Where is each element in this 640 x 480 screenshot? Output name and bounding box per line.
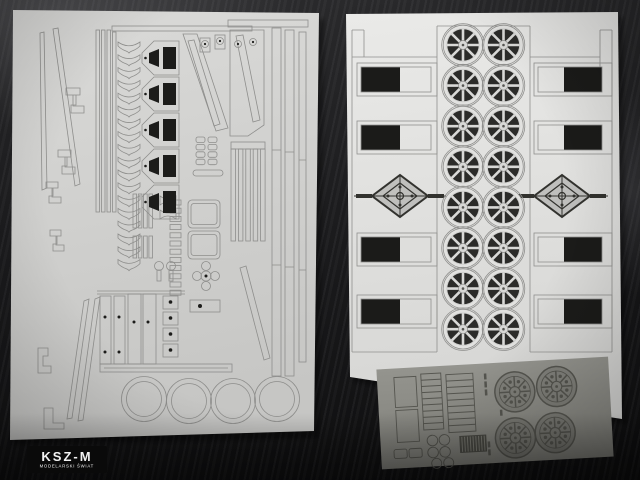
spoked-wheel <box>442 186 485 229</box>
grey-sheet <box>376 357 613 472</box>
grey-sheet-paper <box>376 357 613 470</box>
spoked-wheel <box>482 186 525 229</box>
spoked-wheel <box>442 146 485 189</box>
left-sheet-paper <box>10 10 319 440</box>
spoked-wheel <box>482 146 525 189</box>
kit-sheets-graphic <box>0 0 640 480</box>
spoked-wheel <box>482 64 525 107</box>
watermark-badge: KSZ-M MODELARSKI ŚWIAT <box>27 446 107 473</box>
spoked-wheel <box>442 267 485 310</box>
spoked-wheel <box>482 227 525 270</box>
spoked-wheel <box>442 64 485 107</box>
left-sheet <box>10 10 319 440</box>
spoked-wheel <box>442 105 485 148</box>
spoked-wheel <box>442 227 485 270</box>
spoked-wheel <box>442 308 485 351</box>
watermark-subtitle: MODELARSKI ŚWIAT <box>40 464 94 468</box>
spoked-wheel <box>442 24 485 67</box>
right-sheet <box>346 12 622 419</box>
spoked-wheel <box>482 24 525 67</box>
spoked-wheel <box>482 267 525 310</box>
spoked-wheel <box>482 105 525 148</box>
watermark-title: KSZ-M <box>41 450 92 463</box>
spoked-wheel <box>482 308 525 351</box>
photo-scene: KSZ-M MODELARSKI ŚWIAT <box>0 0 640 480</box>
